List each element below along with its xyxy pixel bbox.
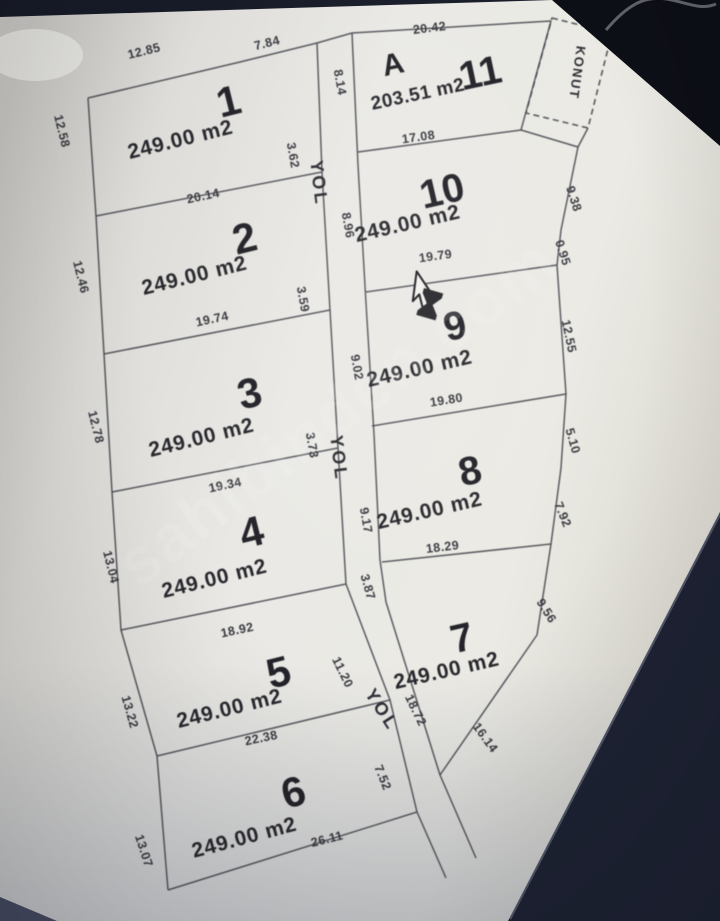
subdivision-plan-svg: 1 249.00 m2 2 249.00 m2 3 249.00 m2 4 24…: [0, 0, 720, 921]
parcel-map-photo: 1 249.00 m2 2 249.00 m2 3 249.00 m2 4 24…: [0, 0, 720, 921]
